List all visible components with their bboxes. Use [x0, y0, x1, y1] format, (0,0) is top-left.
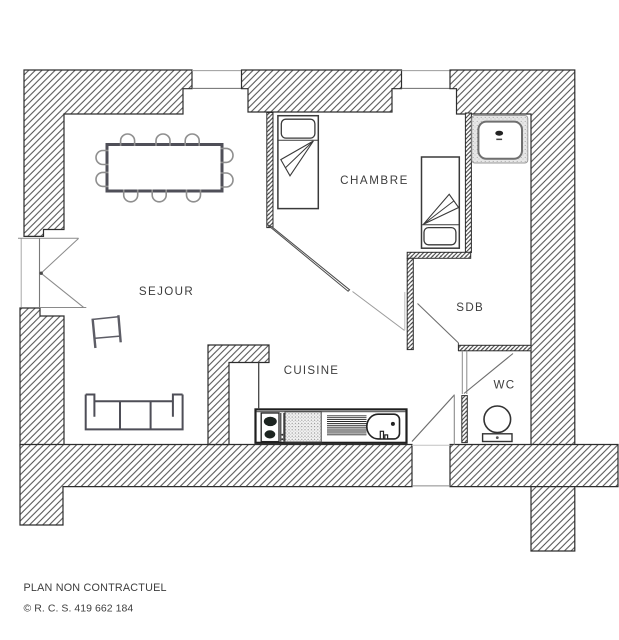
svg-text:CHAMBRE: CHAMBRE — [340, 174, 409, 187]
svg-text:SEJOUR: SEJOUR — [139, 285, 194, 298]
svg-text:PLAN NON CONTRACTUEL: PLAN NON CONTRACTUEL — [24, 582, 167, 594]
svg-text:WC: WC — [493, 378, 515, 391]
svg-text:CUISINE: CUISINE — [284, 365, 339, 377]
svg-text:© R. C. S. 419 662 184: © R. C. S. 419 662 184 — [24, 602, 134, 614]
svg-text:SDB: SDB — [456, 301, 484, 314]
